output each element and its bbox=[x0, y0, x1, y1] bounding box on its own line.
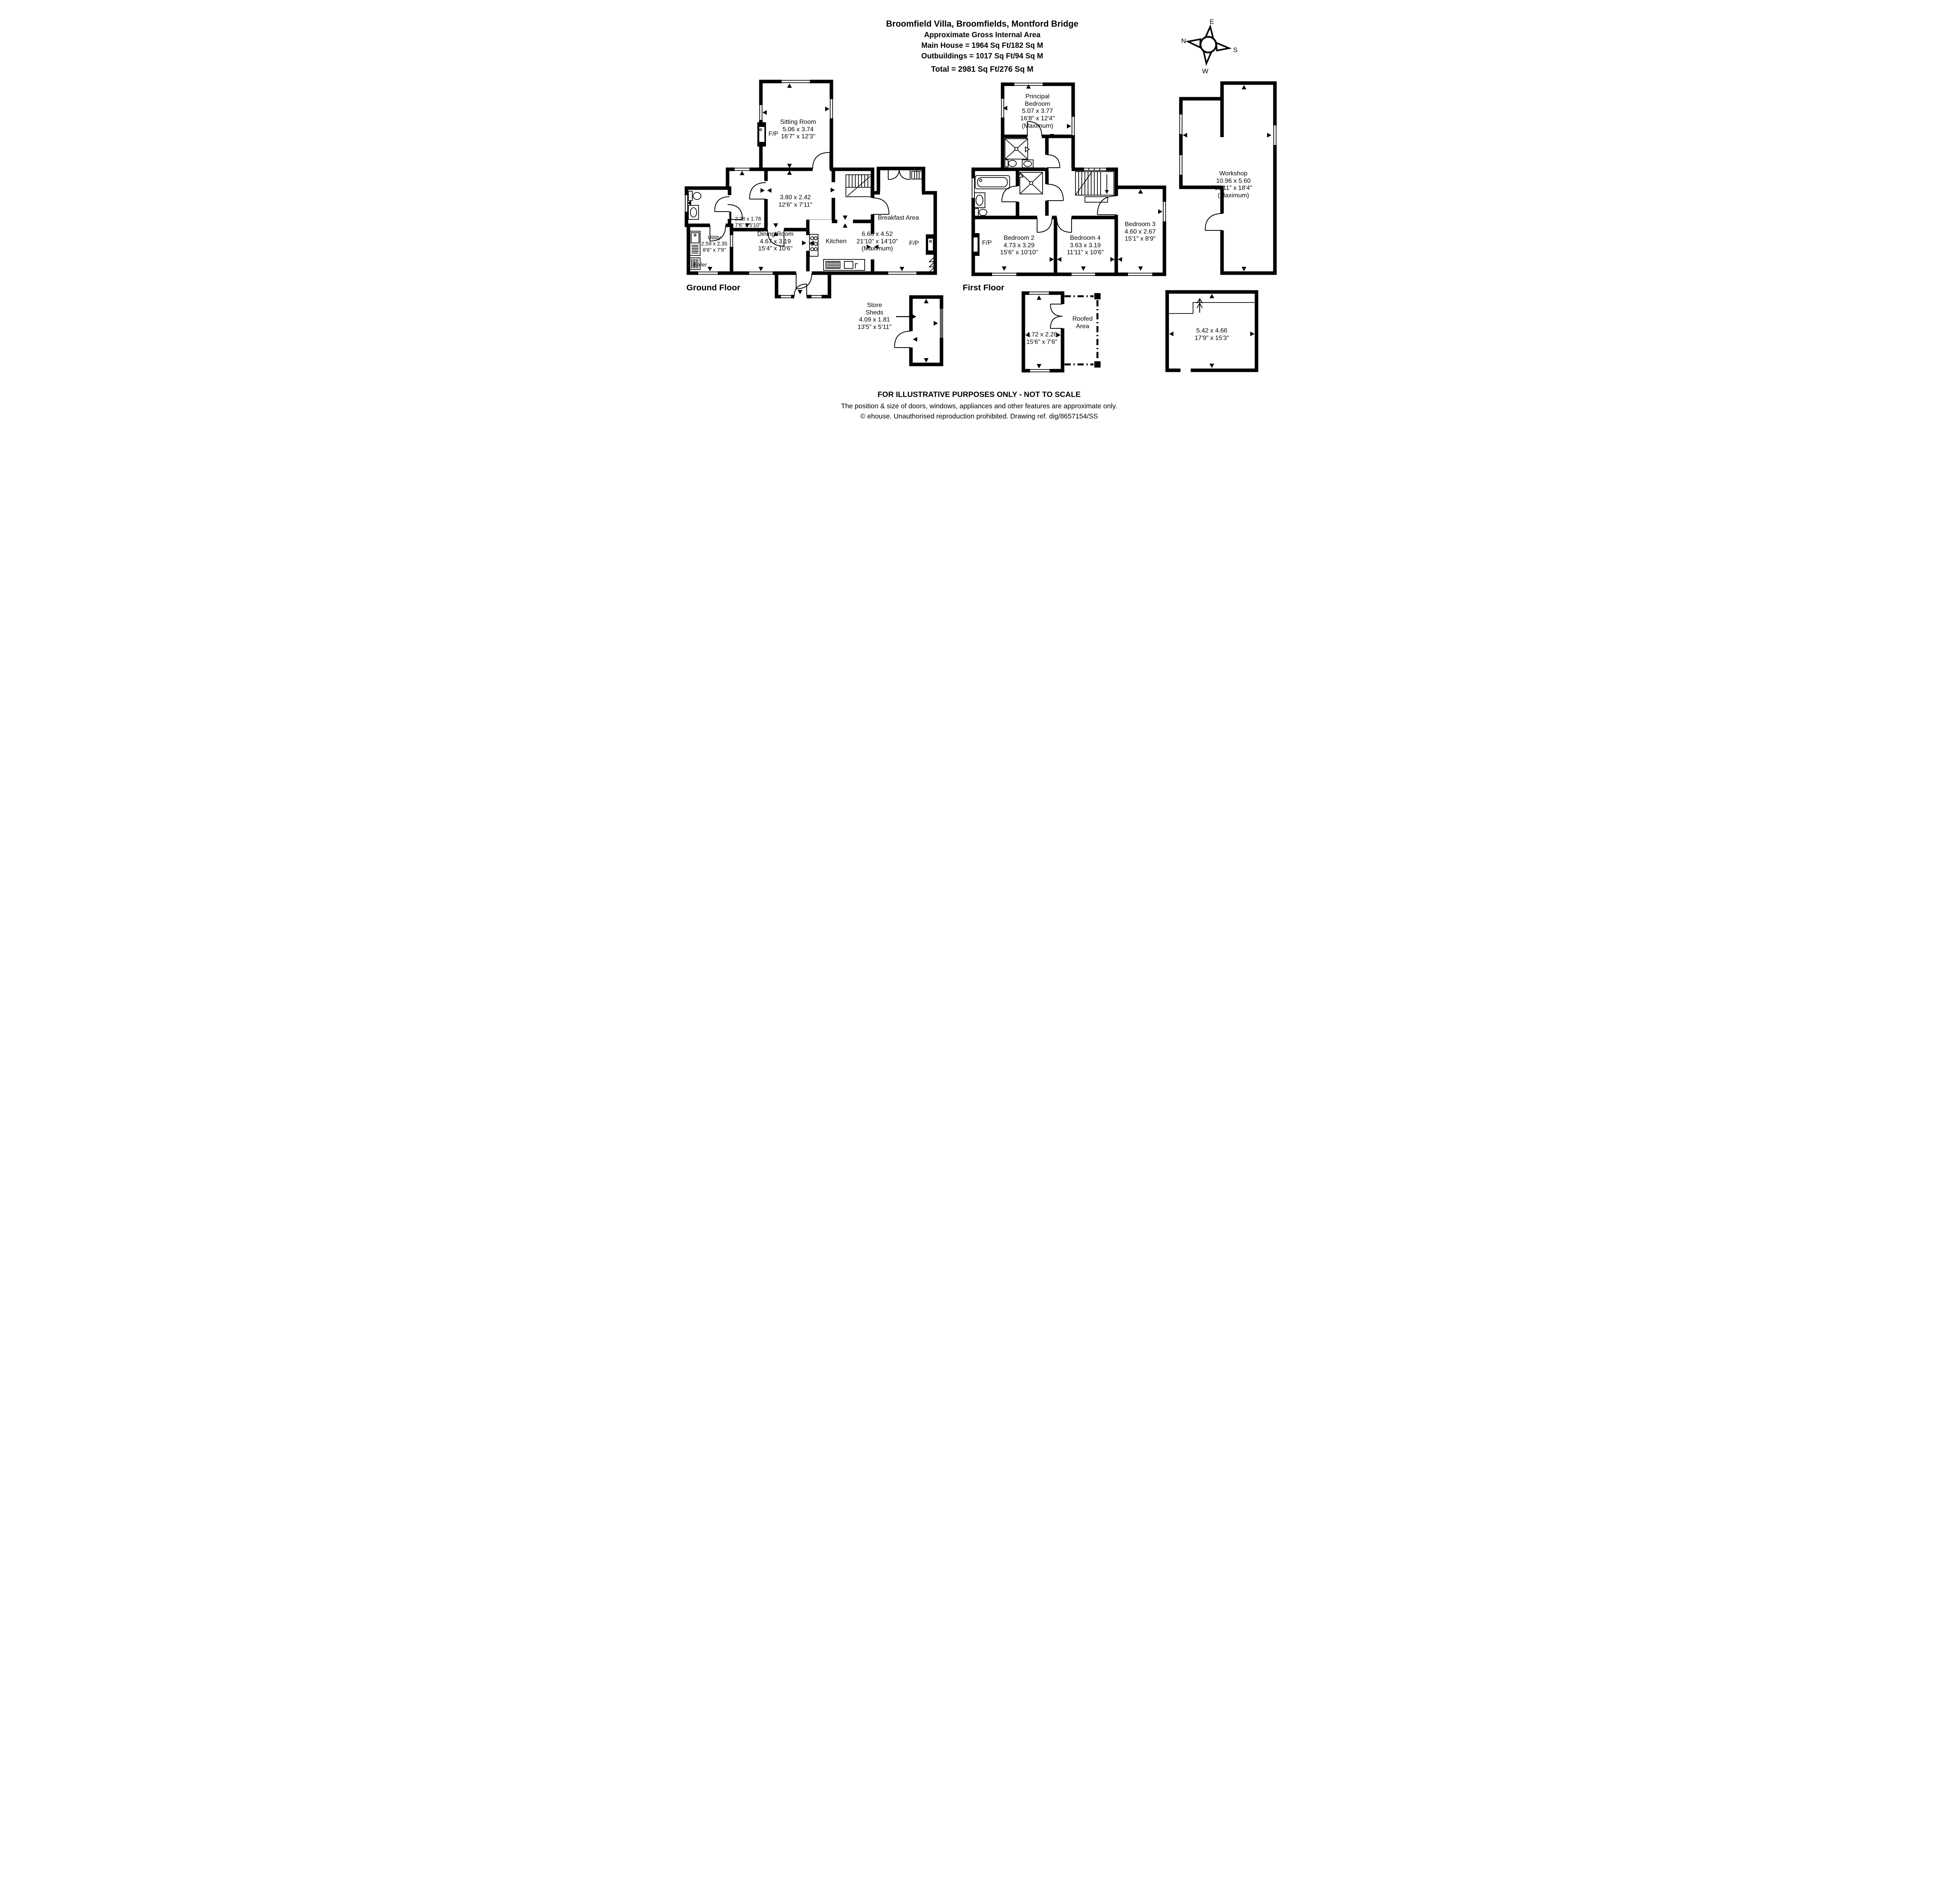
compass-north-label: N bbox=[1181, 37, 1186, 45]
room-label-lobby: 2.28 x 1.787'6" x 5'10" bbox=[735, 216, 761, 228]
property-address: Broomfield Villa, Broomfields, Montford … bbox=[886, 20, 1079, 28]
outbuildings-area: Outbuildings = 1017 Sq Ft/94 Sq M bbox=[886, 53, 1079, 60]
label-roofed-area: Roofed Area bbox=[1067, 315, 1098, 330]
fireplace-label-bed2: F/P bbox=[982, 240, 992, 247]
sitting-fireplace-icon bbox=[757, 122, 766, 147]
footer-approximation-note: The position & size of doors, windows, a… bbox=[841, 403, 1117, 410]
fireplace-label-breakfast: F/P bbox=[909, 240, 919, 248]
first-floor-title: First Floor bbox=[963, 284, 1004, 292]
footer-copyright: © ehouse. Unauthorised reproduction proh… bbox=[841, 413, 1117, 420]
room-label-sitting: Sitting Room5.06 x 3.7416'7" x 12'3" bbox=[780, 119, 816, 141]
compass-icon: E N S W bbox=[1181, 18, 1238, 75]
store-sheds-plan bbox=[894, 297, 943, 364]
ground-floor-title: Ground Floor bbox=[686, 284, 740, 292]
fireplace-label-sitting: F/P bbox=[769, 131, 779, 138]
label-workshop: Workshop10.96 x 5.60 35'11" x 18'4"(Maxi… bbox=[1215, 170, 1252, 200]
bed2-fireplace-icon bbox=[972, 233, 979, 256]
room-label-utility: Utility2.59 x 2.358'6" x 7'9" bbox=[701, 234, 728, 253]
compass-south-label: S bbox=[1233, 46, 1237, 54]
room-label-boiler: Boiler bbox=[693, 262, 707, 268]
floorplan-page: E N S W Broomfield Villa, Broomfields, M… bbox=[677, 0, 1282, 428]
room-label-dining: Dining Room4.67 x 3.1915'4" x 10'6" bbox=[757, 231, 793, 253]
area-subtitle: Approximate Gross Internal Area bbox=[886, 31, 1079, 39]
footer-disclaimer: FOR ILLUSTRATIVE PURPOSES ONLY - NOT TO … bbox=[841, 391, 1117, 399]
label-shed-dims: 4.72 x 2.2815'6" x 7'6" bbox=[1026, 331, 1057, 346]
room-label-breakfast: Breakfast Area bbox=[877, 215, 920, 222]
footer-block: FOR ILLUSTRATIVE PURPOSES ONLY - NOT TO … bbox=[841, 391, 1117, 420]
ground-floor-plan bbox=[685, 80, 936, 299]
room-label-kitchen: Kitchen bbox=[826, 238, 846, 246]
room-label-principal: Principal Bedroom 5.07 x 3.7716'8" x 12'… bbox=[1014, 93, 1061, 130]
room-label-hall: 3.80 x 2.4212'6" x 7'11" bbox=[779, 194, 813, 208]
main-house-area: Main House = 1964 Sq Ft/182 Sq M bbox=[886, 42, 1079, 49]
title-block: Broomfield Villa, Broomfields, Montford … bbox=[886, 20, 1079, 73]
label-store-sheds: Store Sheds 4.09 x 1.8113'5" x 5'11" bbox=[858, 302, 892, 332]
room-dims-breakfast: 6.66 x 4.5221'10" x 14'10"(Maximum) bbox=[856, 231, 898, 253]
room-label-bed3: Bedroom 34.60 x 2.6715'1" x 8'9" bbox=[1124, 221, 1155, 243]
label-garage-dims: 5.42 x 4.6617'9" x 15'3" bbox=[1195, 327, 1229, 342]
room-label-bed2: Bedroom 24.73 x 3.2915'6" x 10'10" bbox=[1000, 235, 1038, 257]
room-label-bed4: Bedroom 43.63 x 3.1911'11" x 10'6" bbox=[1067, 235, 1104, 257]
compass-east-label: E bbox=[1209, 18, 1214, 25]
total-area: Total = 2981 Sq Ft/276 Sq M bbox=[886, 65, 1079, 73]
compass-west-label: W bbox=[1202, 67, 1208, 75]
